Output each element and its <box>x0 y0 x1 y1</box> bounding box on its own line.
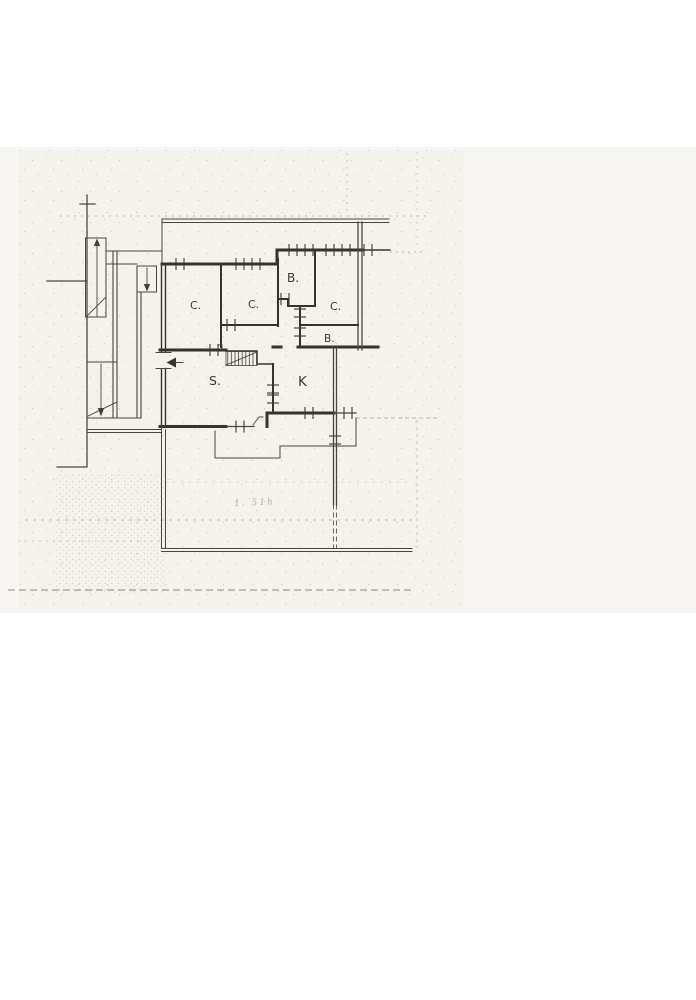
room-label-living-room: S. <box>209 373 221 388</box>
pencil-annotation: 1. 51h <box>234 497 275 508</box>
floorplan-drawing: C. C. B. C. B. S. K 1. 51h <box>0 0 696 1000</box>
room-label-bedroom-right: C. <box>330 300 341 313</box>
scanned-floorplan-page: C. C. B. C. B. S. K 1. 51h <box>0 0 696 1000</box>
internal-stair-hatch <box>226 352 257 366</box>
room-label-bedroom-middle: C. <box>248 298 259 311</box>
room-label-kitchen: K <box>298 374 308 390</box>
room-label-bath-top: B. <box>287 271 299 285</box>
garden-hatch-texture <box>56 474 164 594</box>
room-label-bath-small: B. <box>324 333 335 345</box>
room-label-bedroom-left: C. <box>190 299 201 312</box>
